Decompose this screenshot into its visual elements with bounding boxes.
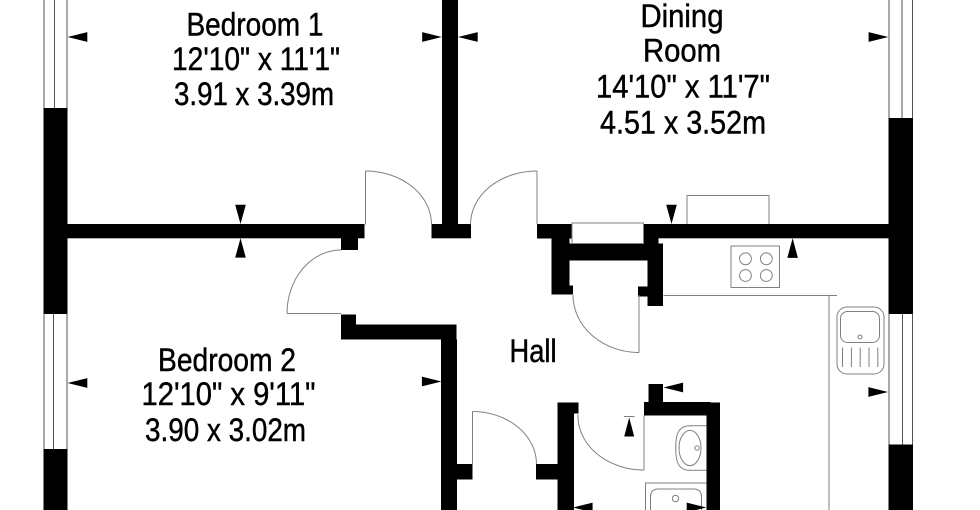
svg-text:14'10" x 11'7": 14'10" x 11'7"	[596, 68, 770, 104]
svg-text:3.90 x 3.02m: 3.90 x 3.02m	[145, 412, 306, 448]
svg-text:12'10" x 9'11": 12'10" x 9'11"	[142, 376, 316, 412]
svg-text:12'10" x 11'1": 12'10" x 11'1"	[172, 41, 340, 77]
svg-text:Hall: Hall	[510, 333, 557, 369]
svg-text:Bedroom 1: Bedroom 1	[187, 7, 324, 43]
svg-text:Dining: Dining	[641, 0, 724, 34]
svg-text:Bedroom 2: Bedroom 2	[158, 342, 296, 378]
svg-text:4.51 x 3.52m: 4.51 x 3.52m	[600, 104, 766, 140]
svg-text:Room: Room	[643, 33, 721, 69]
svg-text:3.91 x 3.39m: 3.91 x 3.39m	[174, 76, 334, 112]
